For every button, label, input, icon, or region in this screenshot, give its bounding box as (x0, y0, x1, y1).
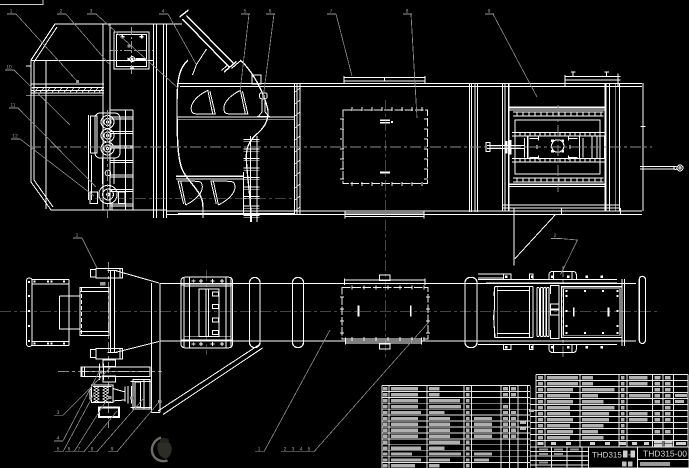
svg-text:THD315-00: THD315-00 (643, 449, 687, 459)
svg-text:THD315: THD315 (592, 451, 622, 460)
